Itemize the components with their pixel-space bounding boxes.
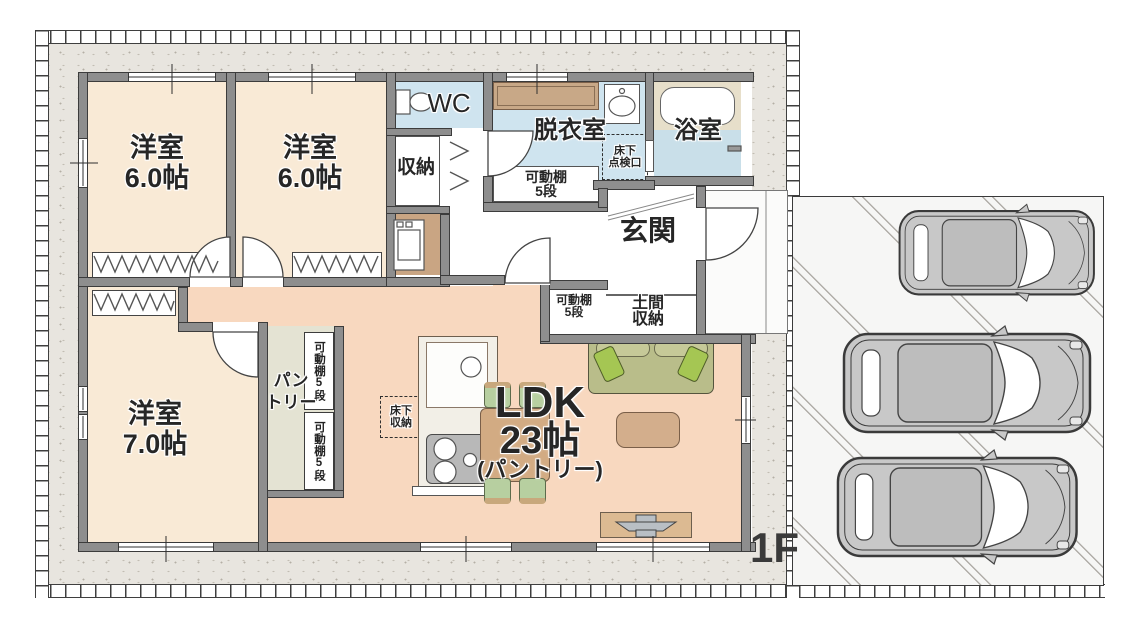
pantry-shelf-lower: 可動棚5段	[304, 412, 334, 490]
wall	[386, 128, 452, 136]
window	[420, 542, 512, 552]
wall	[386, 72, 396, 287]
wall	[386, 206, 450, 214]
window	[128, 72, 216, 82]
ldk-size: 23帖	[480, 422, 600, 462]
bedroom2-closet	[292, 252, 382, 278]
underfloor-storage-box: 床下 収納	[380, 396, 422, 438]
tv-board	[600, 512, 692, 538]
window	[118, 542, 214, 552]
wall	[334, 326, 344, 498]
window	[506, 72, 568, 82]
door-opening	[243, 277, 283, 287]
wall	[540, 334, 756, 344]
wall	[540, 280, 550, 342]
door-opening	[452, 128, 483, 136]
wall	[645, 176, 754, 186]
floor-plan: 可動棚5段 可動棚5段 床下 点検口 床下 収納	[0, 0, 1136, 630]
wall	[440, 275, 505, 285]
dressing-shelf-label2: 5段	[510, 184, 582, 199]
bedroom2-label: 洋室	[250, 134, 370, 162]
underfloor-storage-label2: 収納	[390, 417, 412, 429]
wall	[230, 277, 243, 287]
living-table	[616, 412, 680, 448]
bedroom1-closet	[92, 252, 220, 278]
washstand-nook-floor	[390, 214, 440, 275]
hall-storage-label: 収納	[390, 158, 442, 178]
door-opening	[696, 208, 706, 260]
kitchen-sink	[426, 342, 488, 408]
underfloor-storage-label1: 床下	[390, 405, 412, 417]
pantry-shelf-lower-label: 可動棚5段	[311, 421, 327, 482]
wc-label: WC	[424, 90, 474, 117]
wall	[226, 72, 236, 287]
lot-border-top	[35, 30, 800, 44]
bedroom2-size: 6.0帖	[250, 164, 370, 192]
door-opening	[505, 275, 550, 285]
dressing-room-label: 脱衣室	[520, 118, 620, 143]
wall	[645, 72, 654, 142]
underfloor-access-label1: 床下	[614, 145, 636, 157]
lot-border-bottom	[35, 584, 800, 598]
wall	[258, 322, 268, 552]
door-opening	[190, 277, 230, 287]
entrance-shelf-label2: 5段	[550, 306, 598, 319]
bedroom3-size: 7.0帖	[95, 430, 215, 458]
bathroom-label: 浴室	[668, 118, 728, 143]
window	[741, 396, 751, 444]
window	[78, 414, 88, 440]
laundry-counter	[493, 82, 599, 110]
bedroom3-closet	[92, 290, 176, 316]
wall	[78, 277, 190, 287]
wall	[696, 260, 706, 344]
wall	[696, 186, 706, 208]
wall	[598, 188, 608, 208]
window	[78, 138, 88, 188]
entrance-storage-label2: 収納	[620, 312, 676, 329]
bedroom1-size: 6.0帖	[97, 164, 217, 192]
bedroom1-label: 洋室	[97, 134, 217, 162]
wall	[283, 277, 396, 287]
door-opening	[213, 322, 258, 332]
wall	[440, 214, 450, 277]
floor-label: 1F	[750, 526, 820, 570]
underfloor-access-label2: 点検口	[609, 157, 642, 169]
window	[78, 386, 88, 412]
pantry-label2: トリー	[258, 394, 324, 412]
wall	[540, 280, 608, 290]
wall	[266, 490, 344, 498]
window	[596, 542, 710, 552]
bedroom3-label: 洋室	[95, 400, 215, 428]
vestibule-floor	[493, 210, 598, 283]
wall	[483, 72, 493, 131]
door-opening	[483, 131, 493, 176]
entrance-porch	[706, 190, 788, 334]
pantry-label1: パン	[262, 372, 320, 390]
ldk-note: (パントリー)	[462, 458, 618, 481]
bath-door	[645, 140, 654, 172]
lot-border-bottom-extension	[799, 584, 1105, 598]
wall	[483, 202, 608, 212]
entrance-label: 玄関	[612, 216, 684, 245]
window	[268, 72, 356, 82]
lot-border-left	[35, 30, 49, 598]
parking-area	[792, 196, 1104, 586]
wall	[178, 322, 213, 332]
